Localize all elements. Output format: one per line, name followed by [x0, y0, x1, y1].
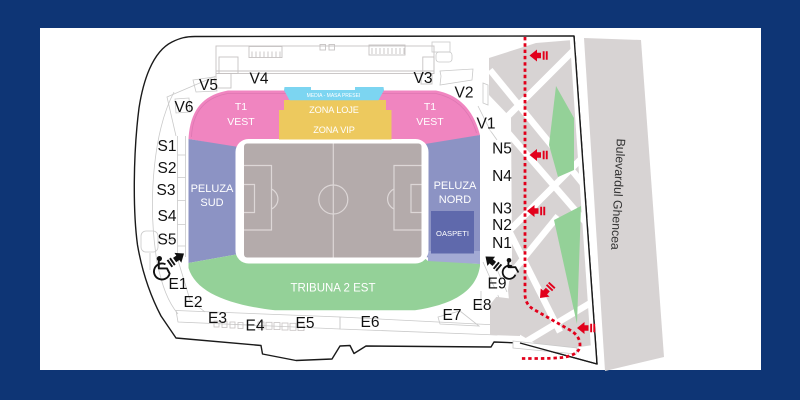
- svg-text:S1: S1: [158, 138, 177, 155]
- svg-text:E5: E5: [296, 315, 315, 332]
- svg-text:ZONA LOJE: ZONA LOJE: [309, 105, 359, 115]
- svg-text:PELUZA: PELUZA: [434, 180, 477, 192]
- svg-text:N4: N4: [492, 168, 512, 185]
- svg-text:V6: V6: [175, 99, 194, 116]
- svg-text:V3: V3: [414, 70, 433, 87]
- svg-text:N5: N5: [492, 141, 512, 158]
- svg-text:VEST: VEST: [227, 116, 255, 128]
- svg-text:E7: E7: [443, 307, 462, 324]
- svg-text:VEST: VEST: [416, 116, 444, 128]
- svg-text:S5: S5: [158, 232, 177, 249]
- svg-text:SUD: SUD: [200, 197, 223, 209]
- svg-text:V5: V5: [199, 77, 218, 94]
- svg-text:V1: V1: [477, 116, 496, 133]
- svg-text:MEDIA - MASA PRESEI: MEDIA - MASA PRESEI: [307, 93, 361, 99]
- svg-text:S2: S2: [158, 160, 177, 177]
- svg-text:E4: E4: [246, 318, 265, 335]
- svg-text:E1: E1: [169, 276, 188, 293]
- svg-text:E6: E6: [361, 314, 380, 331]
- svg-text:TRIBUNA 2 EST: TRIBUNA 2 EST: [291, 283, 376, 295]
- svg-text:E9: E9: [488, 276, 507, 293]
- svg-text:NORD: NORD: [439, 194, 471, 206]
- svg-text:E2: E2: [184, 294, 203, 311]
- svg-text:N2: N2: [492, 217, 512, 234]
- svg-text:V4: V4: [250, 71, 269, 88]
- svg-text:T1: T1: [424, 101, 436, 113]
- svg-text:PELUZA: PELUZA: [191, 183, 234, 195]
- svg-text:S4: S4: [158, 208, 177, 225]
- svg-text:S3: S3: [157, 182, 176, 199]
- svg-text:OASPETI: OASPETI: [436, 229, 469, 238]
- svg-text:E3: E3: [208, 310, 227, 327]
- svg-text:N1: N1: [492, 235, 512, 252]
- svg-text:V2: V2: [455, 85, 474, 102]
- svg-text:E8: E8: [473, 297, 492, 314]
- svg-text:ZONA VIP: ZONA VIP: [313, 125, 355, 135]
- svg-text:T1: T1: [235, 101, 247, 113]
- svg-text:N3: N3: [492, 201, 512, 218]
